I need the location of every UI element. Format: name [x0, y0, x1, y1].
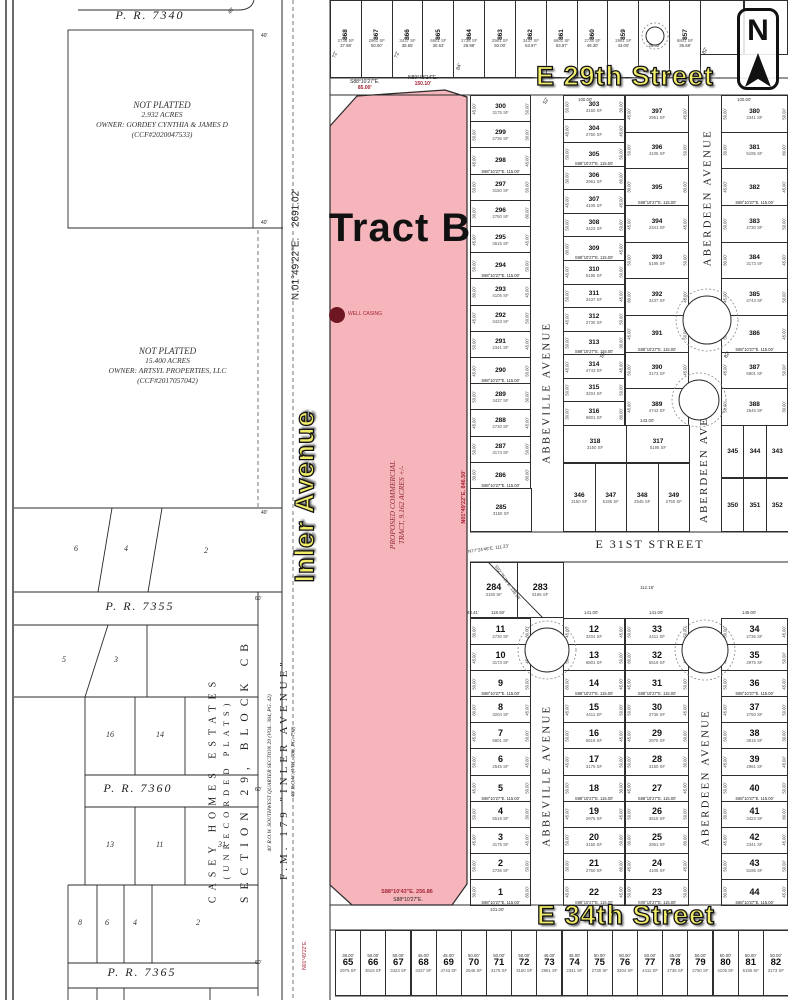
tract-bottom-bearing: S88°10'43"E. 256.86: [342, 889, 472, 895]
row-note-2: 40' R.O.W. (VOL. 386, PG. 792): [291, 733, 297, 798]
e-34th-street-label: E 34th Street: [496, 900, 756, 931]
proposed-commercial-label: PROPOSED COMMERCIAL TRACT, 9.162 ACRES +…: [388, 400, 406, 610]
casey-homes-label: CASEY HOMES ESTATES: [208, 590, 219, 990]
parcel-b-line3: OWNER: ARTSYL PROPERTIES, LLC: [70, 366, 265, 376]
unrecorded-plats-label: (UNRECORDED PLATS): [221, 594, 231, 984]
e-29th-street-label: E 29th Street: [495, 61, 755, 92]
tract-b-label: Tract B: [327, 206, 473, 251]
tract-top-right-bearing: N89°43'14"E. 150.10': [408, 76, 438, 87]
north-letter: N: [747, 16, 769, 46]
inler-bearing-label: N.01°49'22"E. 2691.02': [291, 185, 302, 305]
parcel-b-line2: 15.400 ACRES: [70, 356, 265, 366]
aberdeen-avenue-upper-label: ABERDEEN AVENUE: [703, 118, 714, 278]
north-arrow: N: [737, 8, 779, 90]
parcel-a-line4: (CCF#2020047533): [72, 130, 252, 140]
parcel-a-line2: 2.932 ACRES: [72, 110, 252, 120]
distance-text: 150.10': [408, 82, 438, 88]
parcel-a-line1: NOT PLATTED: [72, 100, 252, 110]
fm-179-label: F.M. 179 "INLER AVENUE": [278, 670, 290, 880]
distance-text: 85.00': [350, 86, 379, 92]
section-29-label: SECTION 29, BLOCK CB: [239, 580, 251, 960]
pr-7340-label: P. R. 7340: [90, 8, 210, 23]
parcel-b-line4: (CCF#2017057042): [70, 376, 265, 386]
abbeville-avenue-lower-label: ABBEVILLE AVENUE: [542, 691, 553, 861]
aberdeen-ave-mid-label: ABERDEEN AVE: [698, 415, 710, 525]
pr-7355-label: P. R. 7355: [80, 599, 200, 614]
parcel-a-line3: OWNER: GORDEY CYNTHIA & JAMES D: [72, 120, 252, 130]
inler-avenue-label: Inler Avenue: [290, 402, 321, 592]
plat-map: 3003175 SF45.00'50.00'2992736 SF50.00'30…: [0, 0, 788, 1000]
tract-east-bearing: N01°49'22"E. 846.50': [461, 442, 467, 552]
row-note-1: 40' R.O.W. SOUTHWEST QUARTER SECTION 29 …: [267, 688, 273, 858]
aberdeen-avenue-lower-label: ABERDEEN AVENUE: [701, 693, 712, 863]
proposed-line2: TRACT, 9.162 ACRES +/-: [397, 400, 406, 610]
tract-bottom-bearing-2: S88°10'27"E.: [368, 897, 448, 903]
abbeville-avenue-upper-label: ABBEVILLE AVENUE: [542, 313, 553, 473]
north-arrow-icon: [745, 53, 771, 87]
pr-7365-label: P. R. 7365: [82, 965, 202, 980]
e-31st-street-label: E 31ST STREET: [585, 537, 715, 552]
pr-7360-label: P. R. 7360: [78, 781, 198, 796]
tract-top-left-bearing: S88°10'27"E. 85.00': [350, 80, 379, 91]
parcel-b-line1: NOT PLATTED: [70, 346, 265, 356]
proposed-line1: PROPOSED COMMERCIAL: [388, 400, 397, 610]
well-casing-label: WELL CASING: [348, 311, 382, 317]
parcel-a-text: NOT PLATTED 2.932 ACRES OWNER: GORDEY CY…: [72, 100, 252, 140]
parcel-b-text: NOT PLATTED 15.400 ACRES OWNER: ARTSYL P…: [70, 346, 265, 386]
labels-layer: P. R. 7340 P. R. 7355 P. R. 7360 P. R. 7…: [0, 0, 788, 1000]
